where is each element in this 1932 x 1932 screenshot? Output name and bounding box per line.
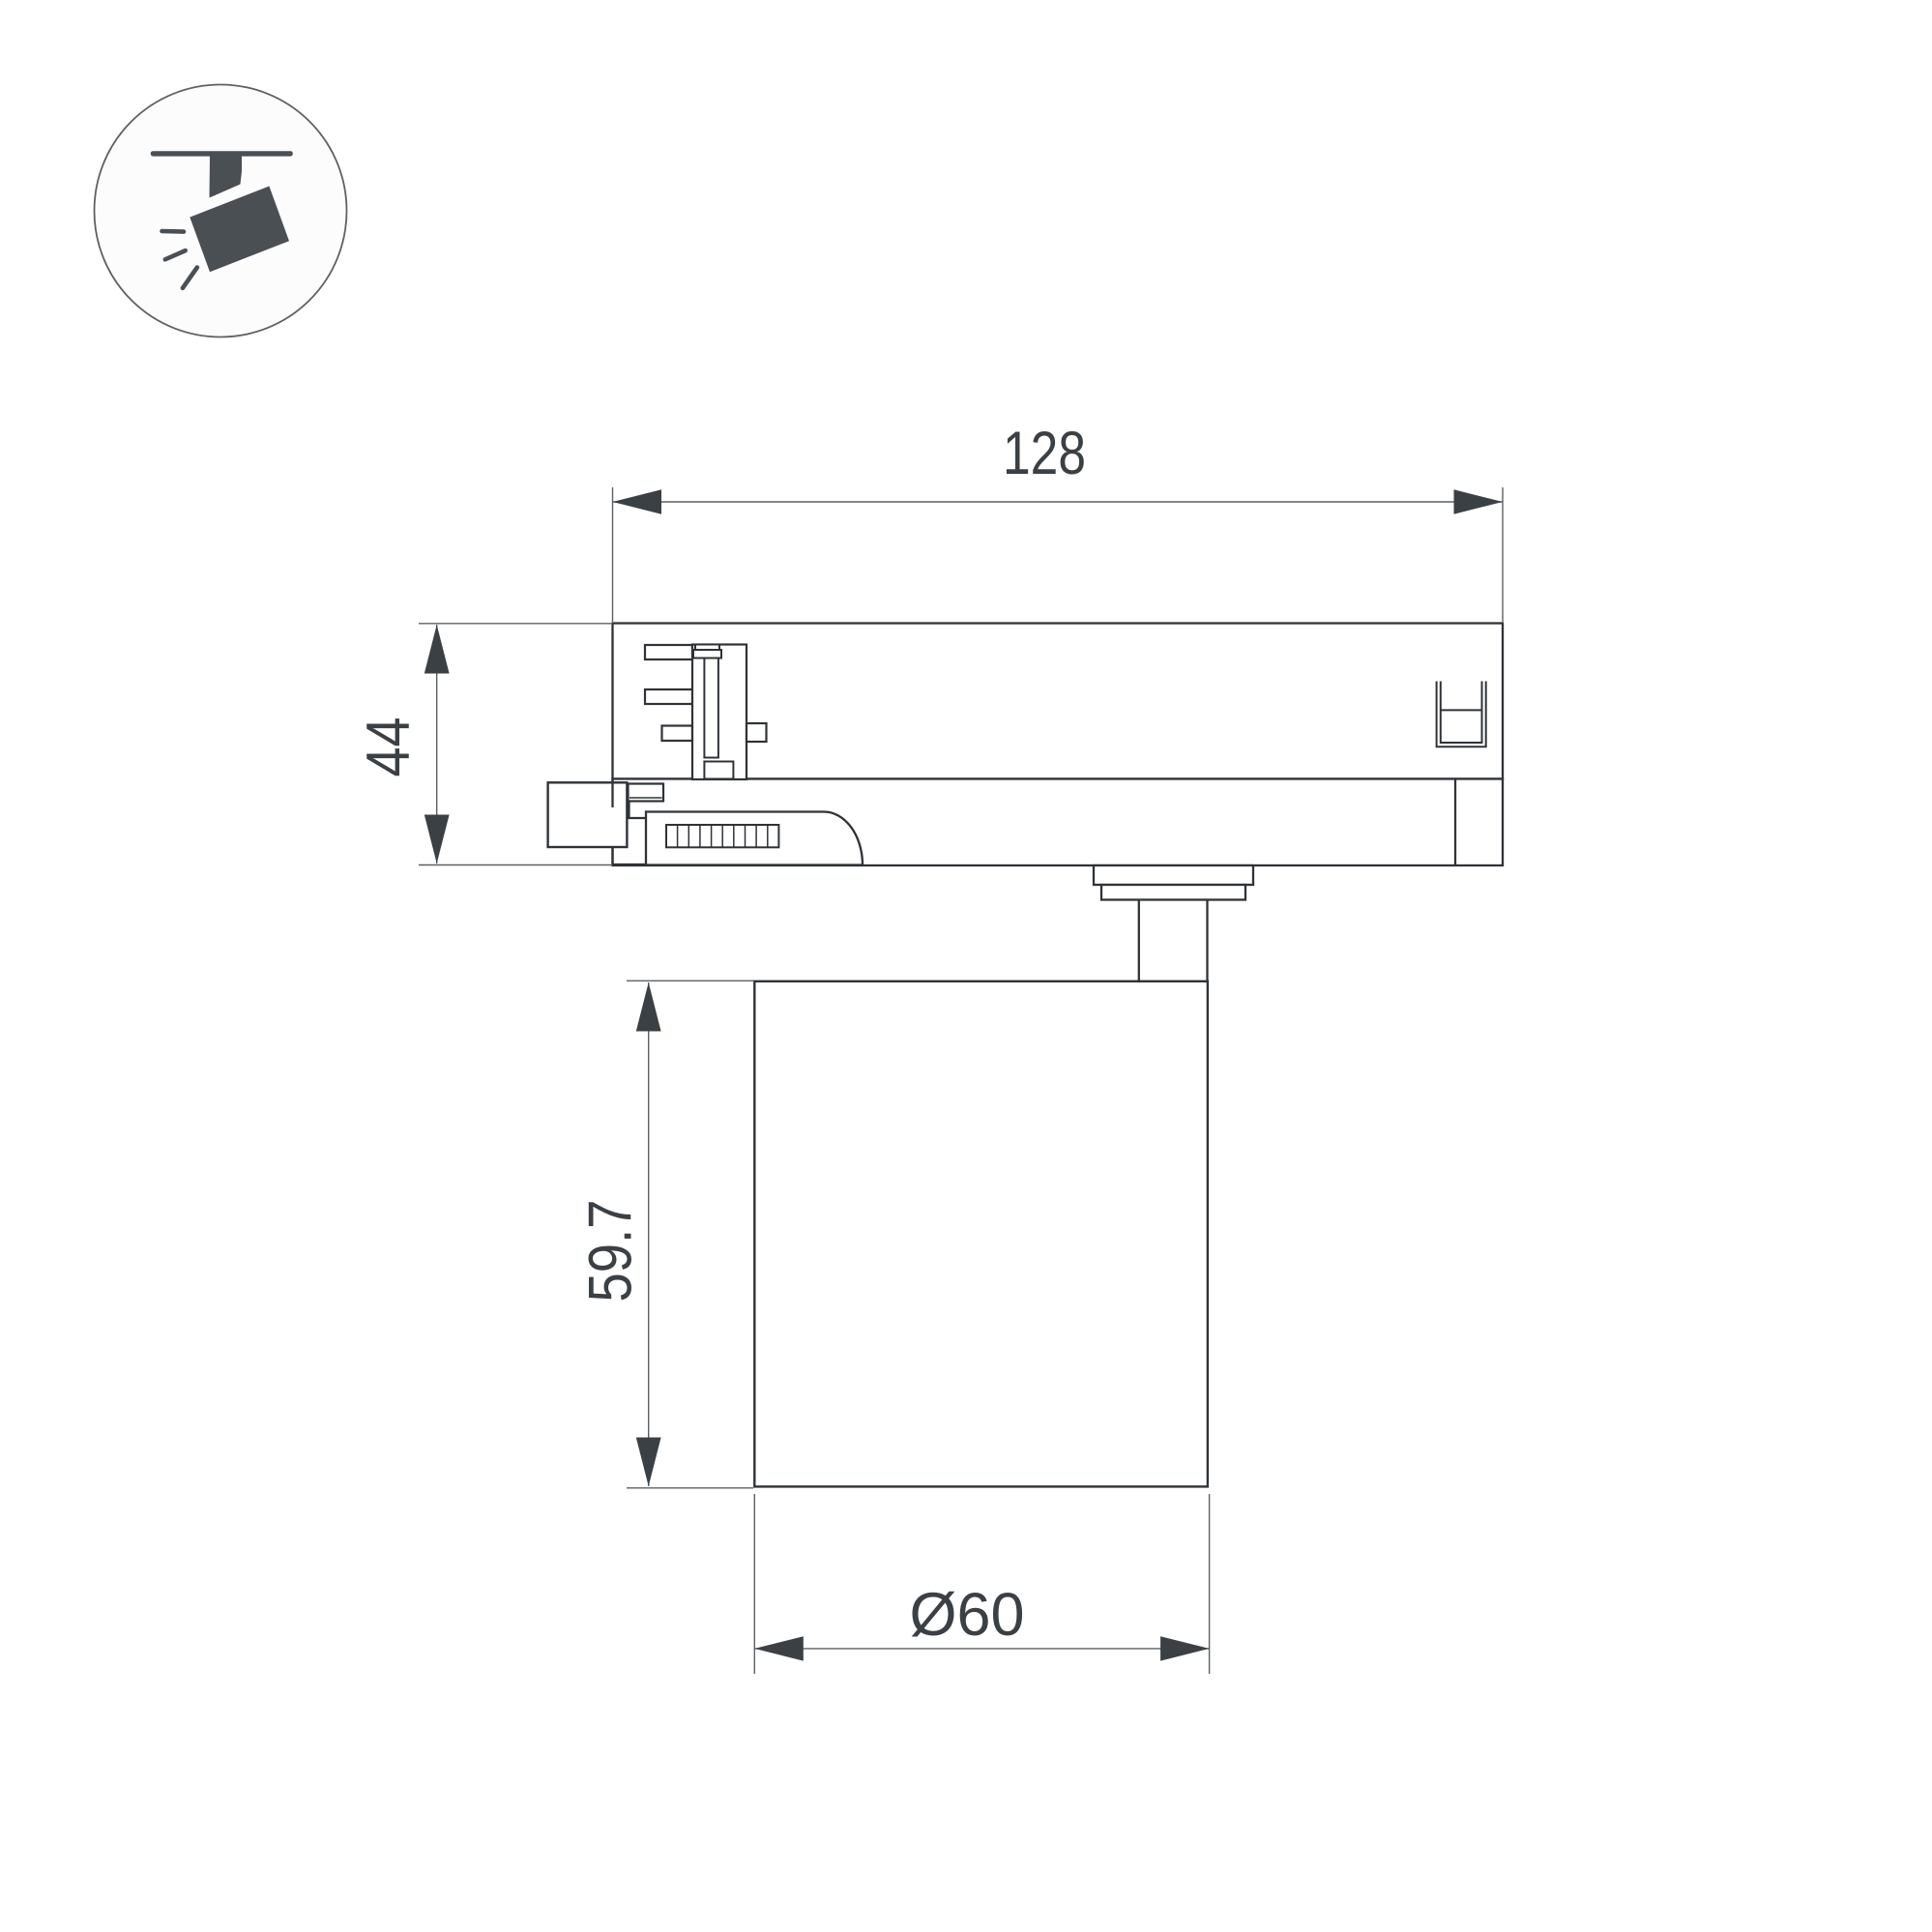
svg-text:Ø60: Ø60 <box>909 1581 1024 1649</box>
svg-text:44: 44 <box>355 717 423 777</box>
svg-text:59.7: 59.7 <box>577 1200 645 1303</box>
svg-text:128: 128 <box>1003 420 1086 487</box>
